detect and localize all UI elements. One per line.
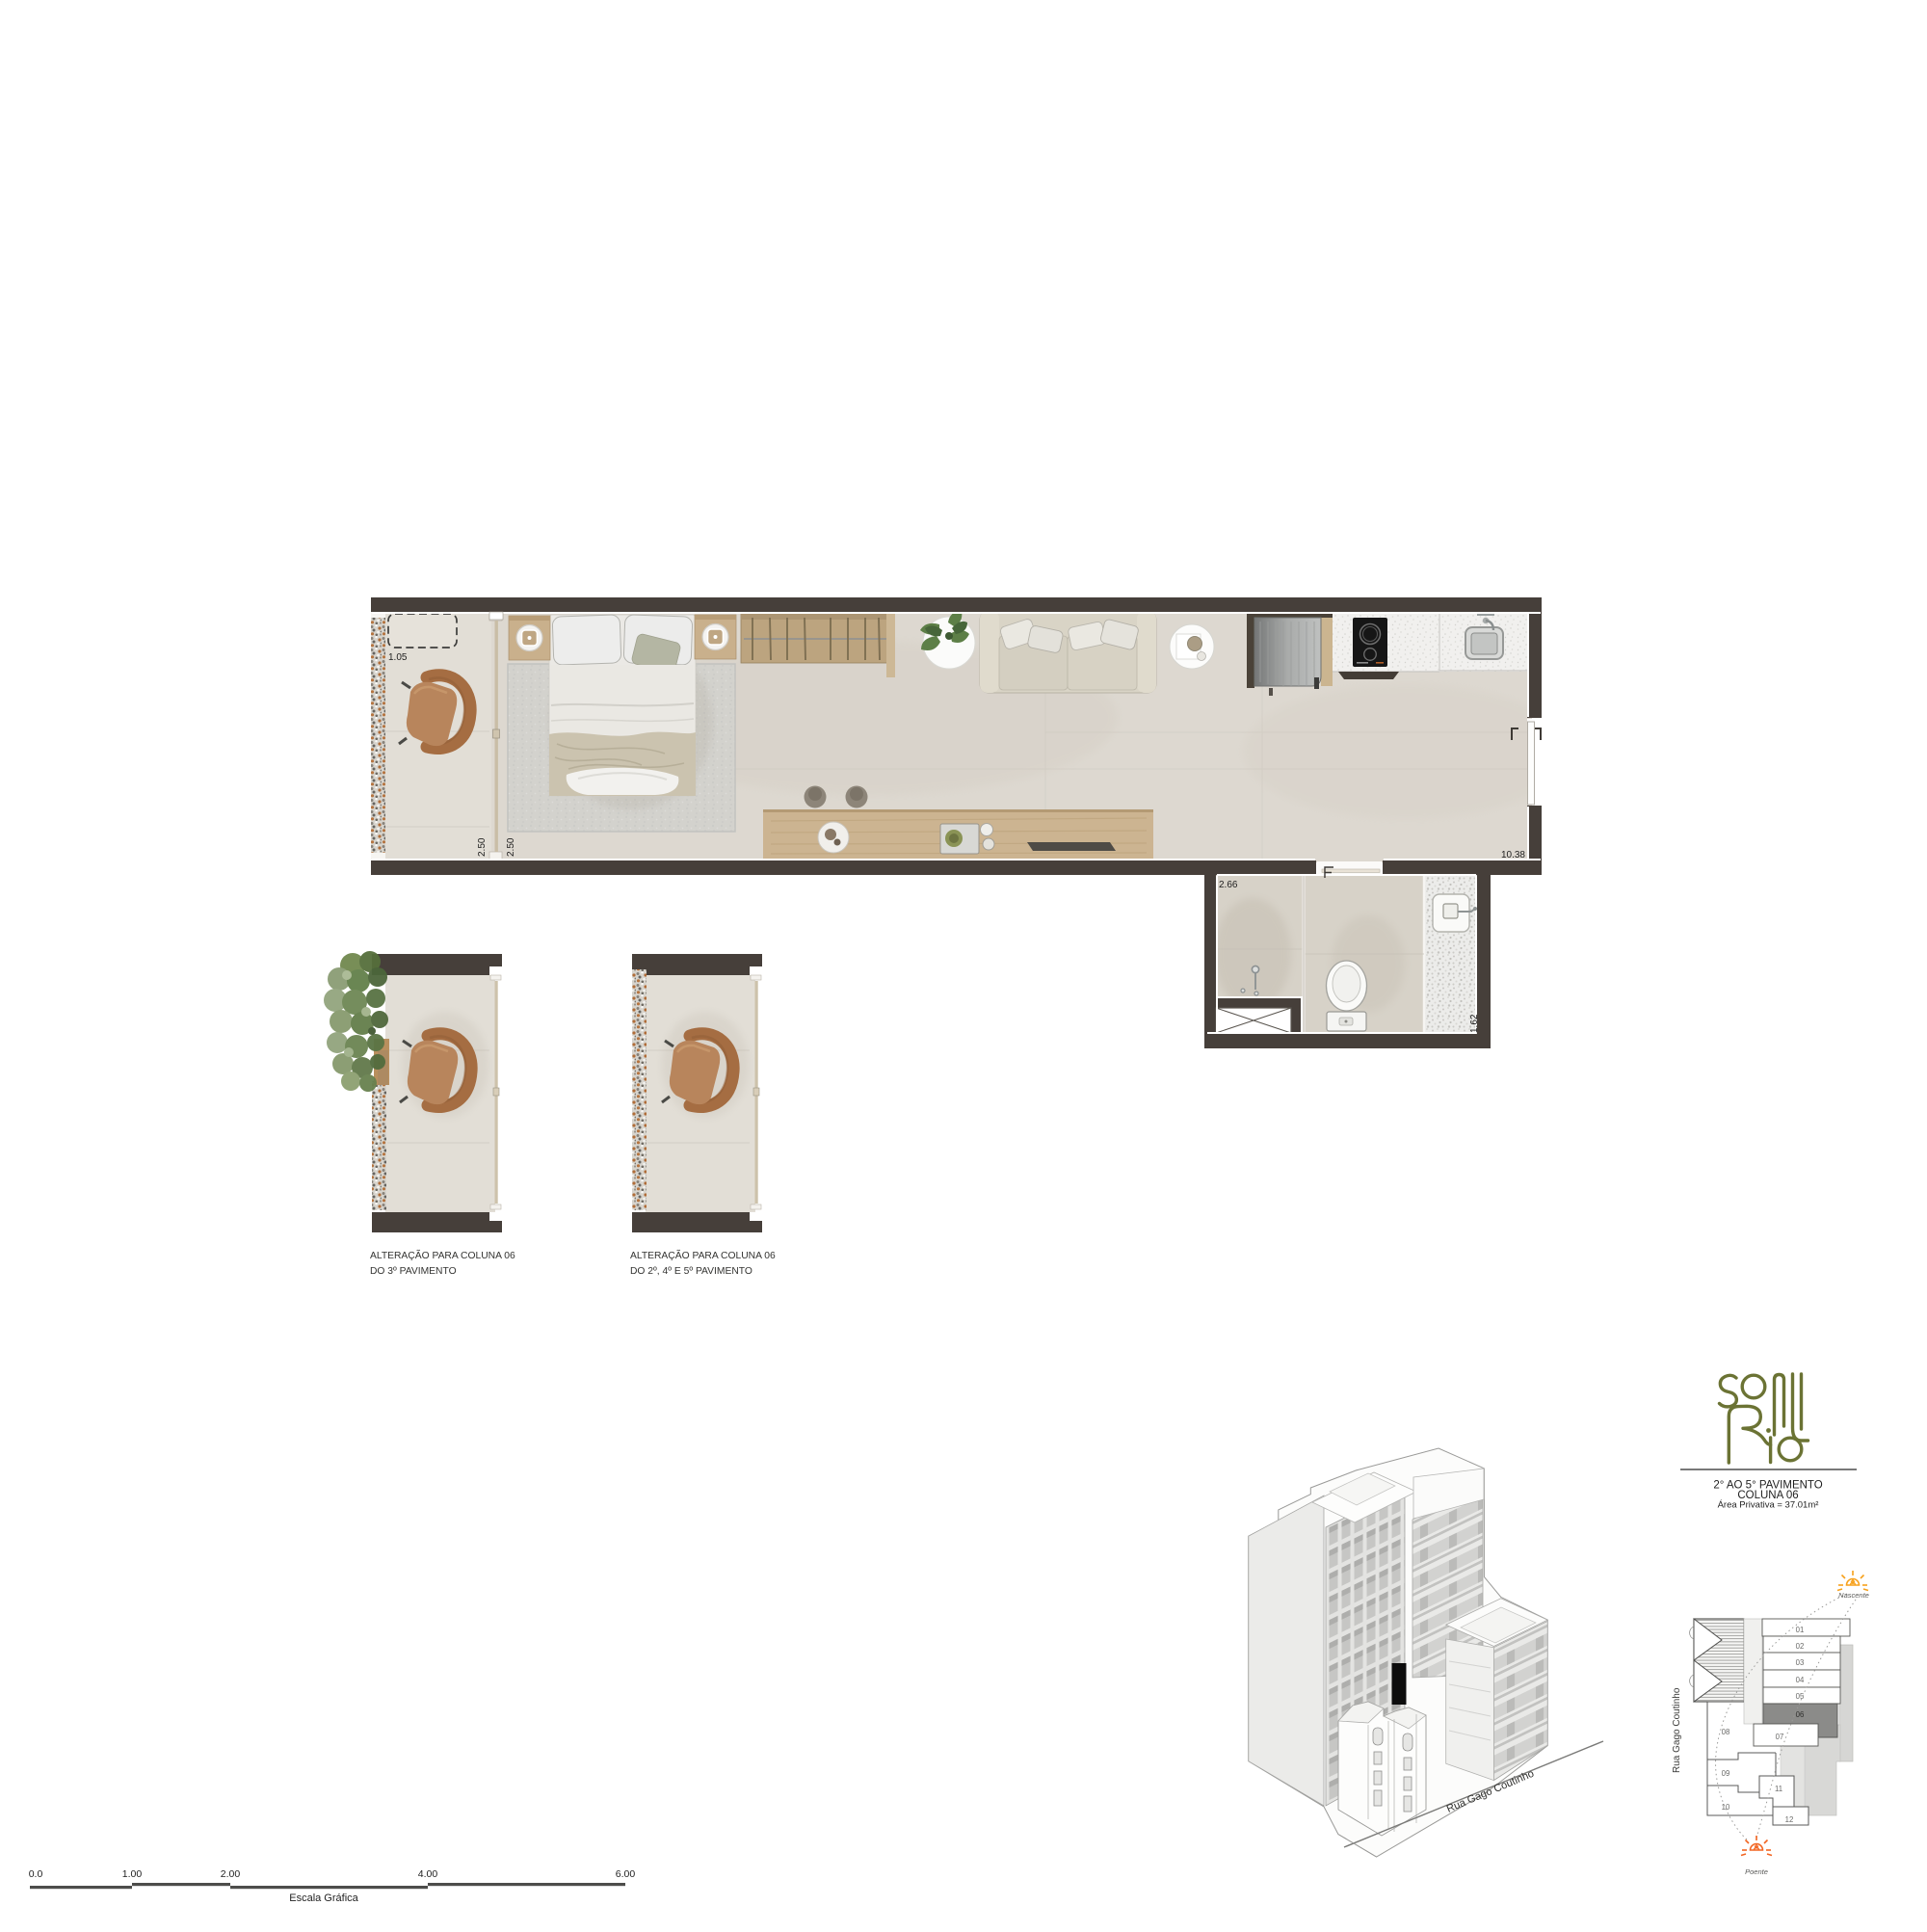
svg-text:1.62: 1.62: [1469, 1014, 1480, 1033]
svg-text:Área Privativa = 37.01m²: Área Privativa = 37.01m²: [1718, 1500, 1819, 1511]
svg-text:12: 12: [1785, 1815, 1794, 1824]
svg-text:6.00: 6.00: [616, 1868, 636, 1880]
svg-text:07: 07: [1776, 1733, 1784, 1741]
svg-text:03: 03: [1796, 1658, 1805, 1667]
svg-text:2.66: 2.66: [1219, 880, 1238, 890]
svg-text:10: 10: [1722, 1803, 1730, 1812]
svg-text:4.00: 4.00: [418, 1868, 438, 1880]
svg-text:2.50: 2.50: [506, 837, 516, 857]
svg-text:06: 06: [1796, 1710, 1805, 1719]
svg-text:05: 05: [1796, 1692, 1805, 1701]
svg-text:Rua Gago Coutinho: Rua Gago Coutinho: [1672, 1687, 1682, 1773]
svg-text:2.00: 2.00: [221, 1868, 241, 1880]
svg-text:01: 01: [1796, 1626, 1805, 1634]
svg-text:DO 2º, 4º E 5º PAVIMENTO: DO 2º, 4º E 5º PAVIMENTO: [630, 1266, 752, 1277]
svg-text:08: 08: [1722, 1728, 1730, 1736]
svg-text:Nascente: Nascente: [1838, 1591, 1869, 1600]
svg-text:10.38: 10.38: [1501, 850, 1525, 860]
svg-text:DO 3º PAVIMENTO: DO 3º PAVIMENTO: [370, 1266, 457, 1277]
svg-text:09: 09: [1722, 1769, 1730, 1778]
svg-text:11: 11: [1775, 1785, 1782, 1793]
svg-text:04: 04: [1796, 1676, 1805, 1684]
svg-text:02: 02: [1796, 1642, 1805, 1651]
svg-text:Escala Gráfica: Escala Gráfica: [289, 1892, 358, 1904]
svg-text:ALTERAÇÃO PARA COLUNA 06: ALTERAÇÃO PARA COLUNA 06: [370, 1249, 515, 1261]
svg-text:2.50: 2.50: [477, 837, 488, 857]
svg-text:ALTERAÇÃO PARA COLUNA 06: ALTERAÇÃO PARA COLUNA 06: [630, 1249, 776, 1261]
svg-text:Poente: Poente: [1745, 1867, 1768, 1876]
svg-text:1.05: 1.05: [388, 652, 408, 663]
svg-text:1.00: 1.00: [122, 1868, 143, 1880]
svg-text:0.0: 0.0: [29, 1868, 43, 1880]
